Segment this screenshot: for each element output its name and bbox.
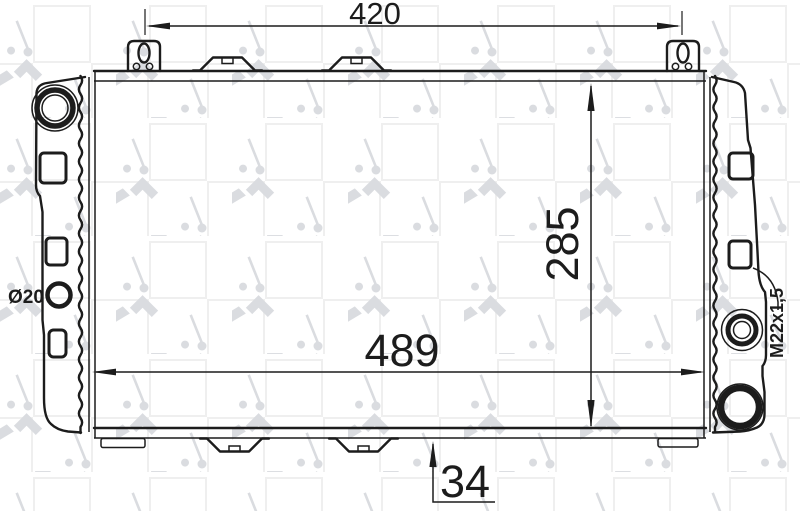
nrf-watermark bbox=[0, 0, 800, 511]
technical-diagram: Ø20 M22x1,5 bbox=[0, 0, 800, 511]
dimension-285-label: 285 bbox=[537, 206, 588, 281]
dimension-489-label: 489 bbox=[364, 325, 439, 376]
radiator-drawing: Ø20 M22x1,5 bbox=[0, 0, 800, 511]
inlet-diameter-label: Ø20 bbox=[8, 287, 44, 308]
thread-spec-label: M22x1,5 bbox=[767, 288, 787, 358]
dimension-420-label: 420 bbox=[349, 0, 401, 31]
dimension-34-label: 34 bbox=[440, 456, 490, 507]
